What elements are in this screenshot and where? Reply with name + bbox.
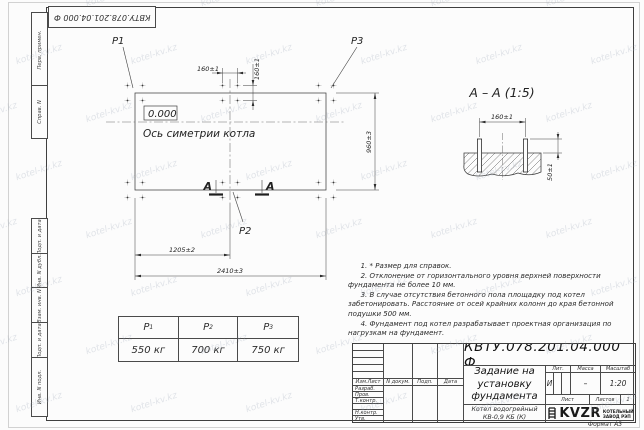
anchor-bolt-points [125, 83, 337, 201]
kvzr-logo-caption: КОТЕЛЬНЫЙ ЗАВОД РЭП [603, 409, 634, 419]
section-dim-50: 50±1 [546, 163, 554, 181]
tb-title-line: установку [471, 379, 537, 392]
tb-product: Котел водогрейный КВ-0,9 КБ (К) [464, 405, 546, 422]
tb-lit-cell-2 [554, 373, 562, 395]
tb-company-cell: KVZR КОТЕЛЬНЫЙ ЗАВОД РЭП [546, 405, 635, 422]
tb-masshtab-label: Масштаб [601, 366, 635, 373]
dim-1205: 1205±2 [169, 246, 195, 254]
tb-massa-label: Масса [571, 366, 601, 373]
tb-header-podp: Подп. [413, 379, 438, 386]
note-4: 4. Фундамент под котел разрабатывает про… [348, 320, 626, 339]
margin-label: Инв. N дубл. [37, 254, 43, 288]
tb-listov-label: Листов [590, 395, 621, 405]
tb-sig-col [384, 386, 413, 422]
margin-label: Справ. N [37, 100, 43, 124]
tb-doc-number: КВТУ.078.201.04.000 Ф [464, 344, 635, 366]
kvzr-caption-line: КОТЕЛЬНЫЙ [603, 409, 634, 414]
p-subscript: 1 [149, 324, 153, 331]
tb-lit-label: Лит. [546, 366, 571, 373]
tb-header-n-dokum: N докум. [384, 379, 413, 386]
point-label-p1: P1 [112, 36, 124, 47]
note-1: 1. * Размер для справок. [348, 262, 626, 272]
section-letter-right: А [265, 180, 275, 193]
load-table-header-p2: P2 [179, 317, 239, 339]
rev-cell [353, 372, 384, 379]
note-3: 3. В случае отсутствия бетонного пола пл… [348, 291, 626, 320]
point-label-p2: P2 [239, 226, 251, 237]
kvzr-logo-coil-icon [547, 407, 557, 420]
note-2: 2. Отклонение от горизонтального уровня … [348, 272, 626, 291]
point-label-p3: P3 [351, 36, 363, 47]
dim-160-vertical: 160±1 [253, 58, 261, 80]
tb-sig-col [438, 386, 464, 422]
tb-sig-col [413, 386, 438, 422]
margin-label: Инв. N подл. [37, 370, 43, 404]
load-table-header-p1: P1 [119, 317, 179, 339]
section-dimension-arrows [480, 121, 560, 158]
rev-cell [353, 351, 384, 358]
format-label: Формат А3 [560, 421, 644, 428]
load-value-p3: 750 кг [238, 339, 298, 361]
rev-cell [353, 358, 384, 365]
dim-160-horizontal: 160±1 [197, 65, 219, 73]
technical-notes: 1. * Размер для справок. 2. Отклонение о… [348, 262, 626, 339]
load-table-header-p3: P3 [238, 317, 298, 339]
elevation-value: 0.000 [148, 109, 177, 120]
tb-lit-cell-3 [562, 373, 571, 395]
margin-label: Подп. и дата [37, 323, 43, 358]
section-title: А – А (1:5) [468, 85, 534, 100]
tb-title-line: Задание на [471, 366, 537, 379]
tb-header-data: Дата [438, 379, 464, 386]
tb-header-izm-list: Изм.Лист [353, 379, 384, 386]
section-letter-left: А [202, 180, 212, 193]
rev-cell [353, 365, 384, 372]
section-cut-marks: А А [202, 180, 274, 195]
tb-row-utv: Утв. [353, 416, 384, 422]
kvzr-logo: KVZR КОТЕЛЬНЫЙ ЗАВОД РЭП [547, 406, 633, 421]
rev-cell [438, 344, 464, 379]
rev-cell [413, 344, 438, 379]
margin-label: Перв. примен. [37, 30, 43, 69]
load-value-p2: 700 кг [179, 339, 239, 361]
tb-list-label: Лист [546, 395, 590, 405]
tb-masshtab-value: 1:20 [601, 373, 635, 395]
p-subscript: 3 [269, 324, 273, 331]
tb-massa-value: – [571, 373, 601, 395]
title-block: Изм.Лист N докум. Подп. Дата Разраб. Про… [352, 343, 636, 423]
rev-cell [384, 344, 413, 379]
kvzr-caption-line: ЗАВОД РЭП [603, 414, 634, 419]
foundation-plan-outline [135, 93, 326, 190]
tb-title-line: фундамента [471, 391, 537, 404]
margin-label: Взам. инв. N [37, 289, 43, 323]
dim-2410: 2410±3 [217, 267, 243, 275]
load-table: P1 P2 P3 550 кг 700 кг 750 кг [118, 316, 299, 362]
boiler-axis-label: Ось симетрии котла [143, 128, 255, 140]
tb-product-line: КВ-0,9 КБ (К) [471, 414, 537, 422]
kvzr-logo-text: KVZR [559, 406, 601, 421]
section-dim-160: 160±1 [491, 113, 513, 121]
tb-listov-value: 1 [621, 395, 635, 405]
concrete-hatching [440, 146, 593, 182]
plan-centerlines [106, 79, 344, 203]
tb-lit-value: И [546, 373, 554, 395]
section-dimension-lines [480, 118, 563, 160]
dim-960: 960±3 [365, 131, 373, 153]
tb-drawing-title: Задание на установку фундамента [464, 366, 546, 405]
p-subscript: 2 [209, 324, 213, 331]
rev-cell [353, 344, 384, 351]
load-value-p1: 550 кг [119, 339, 179, 361]
tb-product-line: Котел водогрейный [471, 406, 537, 414]
margin-label: Подп. и дата [37, 219, 43, 254]
